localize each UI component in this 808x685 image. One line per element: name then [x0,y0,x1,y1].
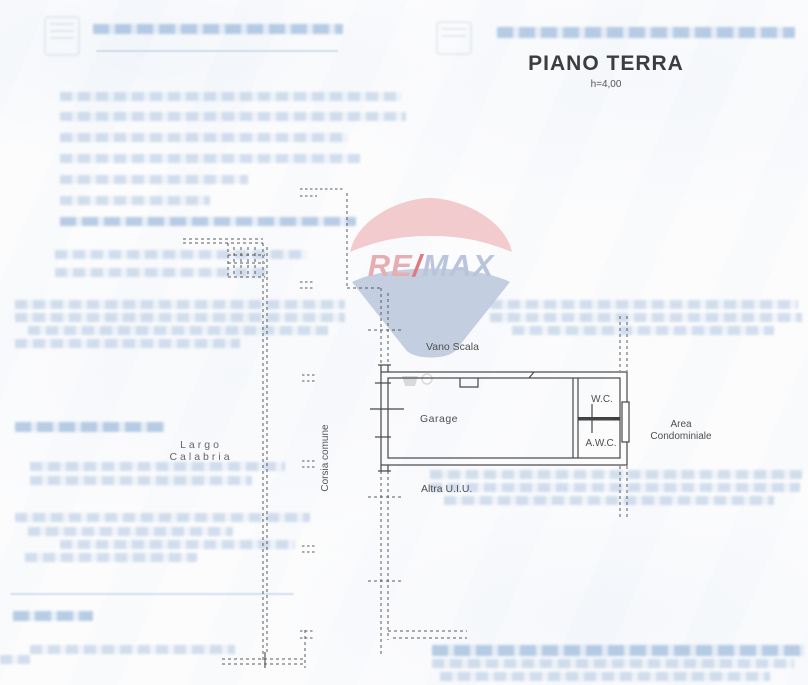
height-note: h=4,00 [404,79,808,90]
label-corsia-comune: Corsia comune [320,422,332,494]
label-garage: Garage [420,413,458,425]
wc-awc-partition [578,404,620,433]
remax-balloon-watermark: RE/MAX [350,198,512,358]
label-wc: W.C. [586,394,618,405]
label-awc: A.W.C. [582,438,620,449]
floor-plan-drawing: RE/MAX [0,0,808,685]
label-altra-uiu: Altra U.I.U. [421,483,472,495]
remax-wordmark: RE/MAX [368,248,496,283]
balloon-basket-mark [402,374,432,386]
dimension-marks [300,189,345,638]
page-title: PIANO TERRA [404,52,808,76]
label-area-condominiale: Area Condominiale [646,419,716,443]
right-wall-window [622,402,629,442]
label-largo-calabria: Largo Calabria [130,439,272,463]
label-vano-scala: Vano Scala [426,341,479,353]
